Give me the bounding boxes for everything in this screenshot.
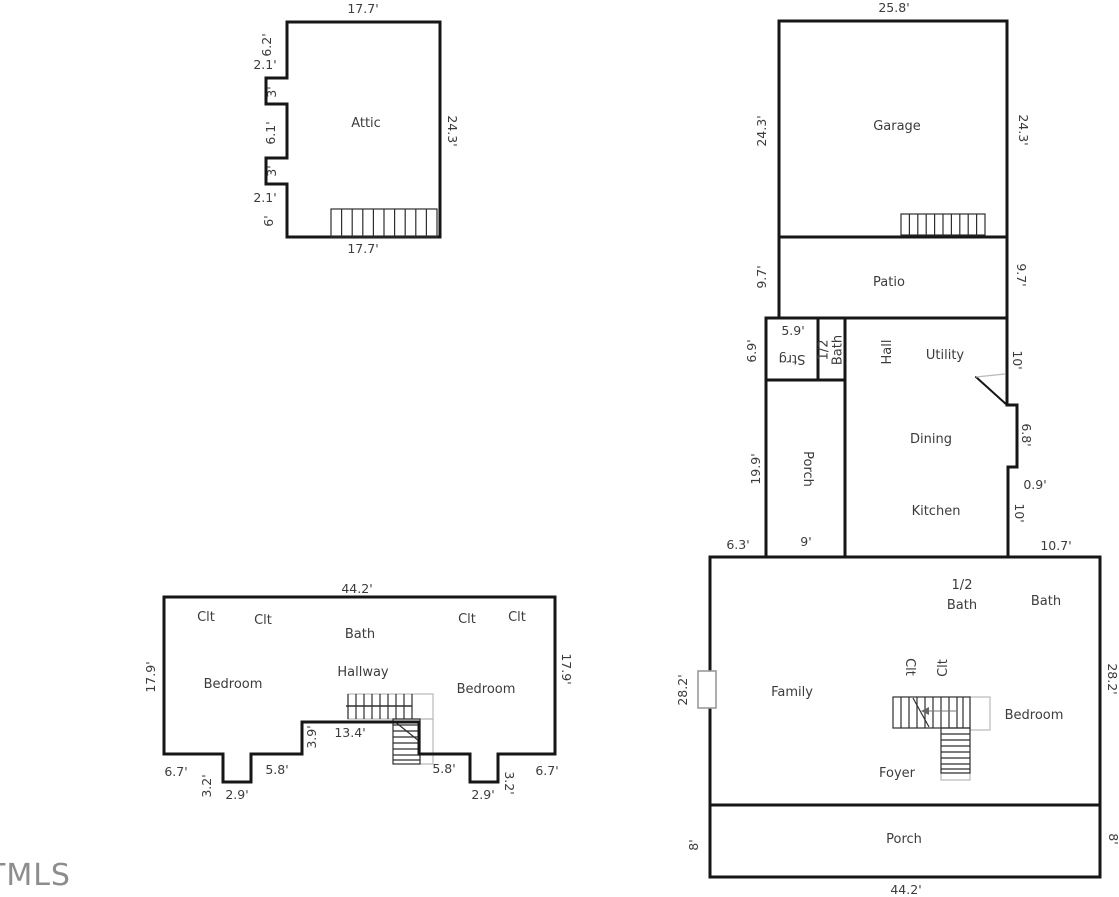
attic-dim-left-c: 3' (265, 86, 279, 97)
recess-height-dim: 3.9' (305, 725, 319, 748)
bottom-dim-right-32: 3.2' (502, 771, 516, 794)
family-dim-left: 28.2' (676, 674, 690, 705)
dining-dim-right: 6.8' (1019, 423, 1033, 446)
attic-dim-left-d: 6.1' (264, 121, 278, 144)
garage-walls (779, 21, 1007, 318)
bottom-dim-left-29: 2.9' (225, 788, 248, 802)
closet-label-4: Clt (508, 611, 526, 625)
half-bath-room-label-family: 1/2Bath (947, 576, 977, 616)
wall-step-dim: 0.9' (1023, 478, 1046, 492)
closet-label-family-2: Clt (937, 659, 951, 677)
lower-porch-room-label: Porch (886, 833, 922, 847)
patio-dim-left: 9.7' (755, 265, 769, 288)
attic-stairs (331, 209, 437, 237)
family-half-bath-line1: 1/2 (952, 578, 973, 593)
family-half-bath-line2: Bath (947, 598, 977, 613)
closet-label-2: Clt (254, 614, 272, 628)
bottom-dim-right-67: 6.7' (535, 764, 558, 778)
attic-dim-right: 24.3' (445, 115, 459, 146)
dining-room-label: Dining (910, 433, 952, 447)
closet-label-1: Clt (197, 611, 215, 625)
attic-dim-left-e: 3' (265, 165, 279, 176)
patio-dim-right: 9.7' (1014, 263, 1028, 286)
half-bath-line2: Bath (831, 335, 846, 365)
kitchen-room-label: Kitchen (912, 505, 961, 519)
floorplan-drawing (0, 0, 1119, 897)
second-floor-dim-left: 17.9' (144, 661, 158, 692)
foyer-room-label: Foyer (879, 767, 915, 781)
bottom-dim-right-29: 2.9' (471, 788, 494, 802)
attic-dim-bottom: 17.7' (347, 242, 378, 256)
garage-dim-right: 24.3' (1016, 114, 1030, 145)
bedroom-room-label-family: Bedroom (1005, 709, 1064, 723)
hall-room-label: Hall (881, 340, 895, 365)
half-bath-room-label-main: 1/2Bath (818, 335, 847, 365)
family-dim-right: 28.2' (1105, 663, 1119, 694)
attic-dim-left-g: 6' (262, 215, 276, 226)
garage-dim-left: 24.3' (755, 115, 769, 146)
bath-room-label-second: Bath (345, 628, 375, 642)
lower-porch-dim-right: 8' (1106, 833, 1119, 844)
second-floor-dim-top: 44.2' (341, 582, 372, 596)
storage-dim-top: 5.9' (781, 324, 804, 338)
half-bath-line1: 1/2 (817, 340, 832, 361)
second-floor-dim-right: 17.9' (559, 653, 573, 684)
upper-porch-dim-left: 19.9' (749, 453, 763, 484)
attic-dim-left-f: 2.1' (253, 191, 276, 205)
utility-room-label: Utility (926, 349, 964, 363)
tmls-watermark: TMLS (0, 858, 71, 893)
floor-plan-page: { "watermark": "TMLS", "attic": { "title… (0, 0, 1119, 897)
bottom-dim-left-67: 6.7' (164, 765, 187, 779)
bedroom-room-label-left: Bedroom (204, 678, 263, 692)
hallway-room-label: Hallway (337, 666, 388, 680)
upper-porch-room-label: Porch (800, 451, 814, 487)
family-dim-bottom: 44.2' (890, 883, 921, 897)
attic-dim-left-b: 2.1' (253, 58, 276, 72)
attic-dim-left-a: 6.2' (260, 33, 274, 56)
bath-room-label-family: Bath (1031, 595, 1061, 609)
attic-room-label: Attic (351, 117, 381, 131)
garage-room-label: Garage (873, 120, 921, 134)
attic-dim-top: 17.7' (347, 2, 378, 16)
garage-stairs (901, 214, 985, 235)
lower-porch-dim-left: 8' (687, 839, 701, 850)
family-room-label: Family (771, 686, 813, 700)
utility-dim-right: 10' (1010, 350, 1024, 369)
patio-room-label: Patio (873, 276, 905, 290)
kitchen-dim-right: 10' (1012, 503, 1026, 522)
upper-porch-dim-bottom: 9' (800, 535, 811, 549)
bedroom-room-label-right: Bedroom (457, 683, 516, 697)
bottom-dim-left-32: 3.2' (200, 774, 214, 797)
closet-label-family-1: Clt (902, 658, 916, 676)
closet-label-3: Clt (458, 613, 476, 627)
storage-room-label: Strg (779, 351, 806, 365)
kitchen-dim-bottom: 10.7' (1040, 539, 1071, 553)
garage-dim-top: 25.8' (878, 1, 909, 15)
storage-dim-left: 6.9' (745, 339, 759, 362)
family-dim-top-left: 6.3' (726, 538, 749, 552)
fireplace (698, 671, 716, 708)
recess-width-dim: 13.4' (334, 726, 365, 740)
bottom-dim-right-58: 5.8' (432, 762, 455, 776)
bottom-dim-left-58: 5.8' (265, 763, 288, 777)
